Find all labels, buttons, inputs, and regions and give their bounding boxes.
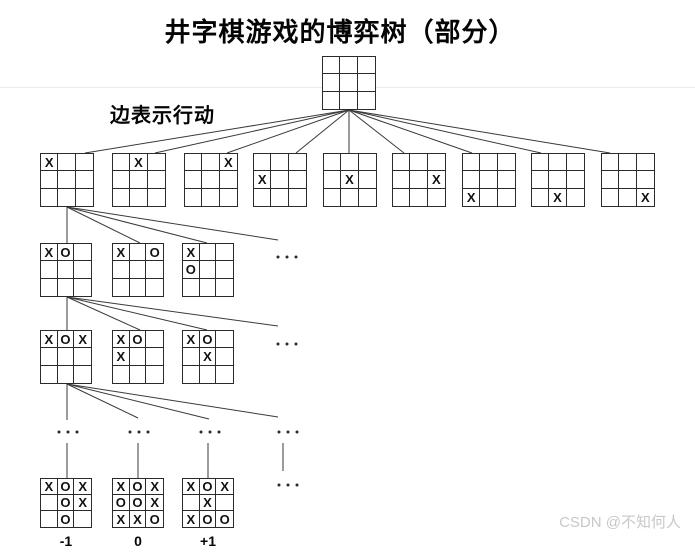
board-cell <box>58 348 75 365</box>
ellipsis-dot <box>76 431 79 434</box>
board-cell <box>393 189 410 206</box>
board-l1-3: X <box>253 153 307 207</box>
board-cell <box>271 171 288 188</box>
watermark: CSDN @不知何人 <box>559 511 681 532</box>
board-cell: X <box>113 331 130 348</box>
board-cell <box>202 171 219 188</box>
board-l1-1: X <box>112 153 166 207</box>
board-cell <box>323 57 340 74</box>
ellipsis-dot <box>278 431 281 434</box>
ellipsis-dot <box>296 431 299 434</box>
board-cell <box>619 171 636 188</box>
board-cell: O <box>130 479 147 495</box>
ellipsis-more-nodes <box>277 256 298 259</box>
board-cell <box>113 261 130 278</box>
board-cell <box>532 189 549 206</box>
board-cell <box>41 171 58 188</box>
board-l1-2: X <box>184 153 238 207</box>
board-cell <box>637 171 654 188</box>
board-cell <box>358 57 375 74</box>
ellipsis-dot <box>295 256 298 259</box>
board-cell <box>113 279 130 296</box>
board-cell: O <box>58 331 75 348</box>
ellipsis-dot <box>218 431 221 434</box>
board-cell <box>200 244 217 261</box>
board-cell <box>146 366 163 383</box>
board-cell <box>289 171 306 188</box>
ellipsis-dot <box>200 431 203 434</box>
board-cell: X <box>74 331 91 348</box>
board-cell: X <box>637 189 654 206</box>
board-cell: X <box>183 479 200 495</box>
board-cell <box>254 189 271 206</box>
board-root <box>322 56 376 110</box>
board-cell <box>216 331 233 348</box>
board-cell: X <box>113 479 130 495</box>
board-cell <box>200 366 217 383</box>
board-cell <box>324 171 341 188</box>
board-cell <box>324 189 341 206</box>
board-cell: O <box>200 479 217 495</box>
board-cell: X <box>113 511 130 527</box>
tree-edge <box>67 384 209 419</box>
board-cell <box>74 279 91 296</box>
board-cell: X <box>216 479 233 495</box>
board-cell <box>463 171 480 188</box>
board-l1-5: X <box>392 153 446 207</box>
ellipsis-dot <box>286 256 289 259</box>
tree-edge <box>67 207 207 243</box>
board-cell <box>216 348 233 365</box>
board-cell: X <box>549 189 566 206</box>
board-cell <box>130 261 147 278</box>
board-cell <box>146 261 163 278</box>
board-cell <box>202 189 219 206</box>
board-cell <box>130 348 147 365</box>
board-l3-0: XOX <box>40 330 92 384</box>
board-cell <box>74 511 91 527</box>
board-cell <box>340 74 357 91</box>
board-cell <box>271 189 288 206</box>
board-cell <box>146 331 163 348</box>
board-l2-1: XO <box>112 243 164 297</box>
board-l2-0: XO <box>40 243 92 297</box>
board-cell <box>113 366 130 383</box>
board-cell <box>216 261 233 278</box>
board-cell <box>498 171 515 188</box>
ellipsis-dot <box>287 431 290 434</box>
board-cell <box>41 495 58 511</box>
ellipsis-more-nodes <box>200 431 221 434</box>
board-cell <box>113 171 130 188</box>
board-cell <box>58 366 75 383</box>
tree-edge <box>85 110 349 153</box>
ellipsis-more-nodes <box>58 431 79 434</box>
board-cell <box>185 171 202 188</box>
tree-edge <box>349 110 472 153</box>
board-cell: X <box>146 479 163 495</box>
board-cell: O <box>216 511 233 527</box>
board-cell <box>200 261 217 278</box>
board-cell <box>130 189 147 206</box>
board-cell: X <box>183 244 200 261</box>
board-cell: X <box>74 479 91 495</box>
tree-edge <box>349 110 541 153</box>
board-cell: X <box>41 154 58 171</box>
board-cell <box>41 366 58 383</box>
board-cell <box>549 171 566 188</box>
board-cell: O <box>200 331 217 348</box>
board-cell <box>271 154 288 171</box>
board-cell: X <box>146 495 163 511</box>
board-cell <box>183 348 200 365</box>
board-cell <box>358 74 375 91</box>
board-l1-8: X <box>601 153 655 207</box>
board-cell: X <box>183 511 200 527</box>
ellipsis-dot <box>295 343 298 346</box>
board-cell <box>567 154 584 171</box>
board-cell <box>428 189 445 206</box>
board-l3-2: XOX <box>182 330 234 384</box>
board-cell <box>148 154 165 171</box>
board-terminal-0: XOXOXO <box>40 478 92 528</box>
board-cell <box>41 261 58 278</box>
board-cell: O <box>58 244 75 261</box>
ellipsis-dot <box>296 484 299 487</box>
board-cell <box>148 171 165 188</box>
board-cell: O <box>183 261 200 278</box>
board-cell <box>498 154 515 171</box>
board-cell <box>216 495 233 511</box>
board-cell: O <box>58 495 75 511</box>
board-cell: X <box>113 244 130 261</box>
board-cell <box>289 189 306 206</box>
ellipsis-dot <box>58 431 61 434</box>
board-cell <box>289 154 306 171</box>
tree-edge <box>67 207 278 240</box>
board-cell: X <box>183 331 200 348</box>
board-cell <box>41 279 58 296</box>
board-cell <box>58 261 75 278</box>
board-cell: X <box>200 495 217 511</box>
ellipsis-dot <box>287 484 290 487</box>
ellipsis-more-nodes <box>278 431 299 434</box>
board-cell <box>74 261 91 278</box>
board-cell <box>567 189 584 206</box>
board-cell <box>341 154 358 171</box>
ellipsis-dot <box>277 343 280 346</box>
tree-edge <box>349 110 610 153</box>
board-l1-7: X <box>531 153 585 207</box>
board-cell <box>185 154 202 171</box>
board-cell <box>637 154 654 171</box>
board-cell <box>76 189 93 206</box>
board-l1-4: X <box>323 153 377 207</box>
board-cell <box>254 154 271 171</box>
board-cell: O <box>130 331 147 348</box>
tree-edge <box>296 110 349 153</box>
ellipsis-dot <box>277 256 280 259</box>
board-cell <box>220 171 237 188</box>
board-cell <box>148 189 165 206</box>
board-cell: X <box>200 348 217 365</box>
board-cell <box>324 154 341 171</box>
ellipsis-more-nodes <box>277 343 298 346</box>
board-cell <box>202 154 219 171</box>
ellipsis-more-nodes <box>278 484 299 487</box>
board-cell: O <box>146 244 163 261</box>
board-cell <box>183 366 200 383</box>
board-cell: X <box>220 154 237 171</box>
game-tree-diagram: 井字棋游戏的博弈树（部分） 边表示行动 XXXXXXXXXXOXOXOXOXXO… <box>0 0 695 552</box>
board-cell <box>58 171 75 188</box>
board-cell <box>185 189 202 206</box>
board-cell <box>359 171 376 188</box>
terminal-value-label: -1 <box>60 533 72 549</box>
board-cell: O <box>130 495 147 511</box>
board-cell <box>130 244 147 261</box>
board-cell <box>200 279 217 296</box>
board-cell: O <box>58 479 75 495</box>
board-cell <box>498 189 515 206</box>
terminal-value-label: +1 <box>200 533 216 549</box>
board-cell <box>113 154 130 171</box>
board-cell: X <box>41 331 58 348</box>
board-cell: O <box>58 511 75 527</box>
board-cell <box>428 154 445 171</box>
board-cell <box>340 92 357 109</box>
board-cell <box>74 366 91 383</box>
board-cell <box>393 171 410 188</box>
board-cell: X <box>41 479 58 495</box>
board-cell: X <box>341 171 358 188</box>
board-cell <box>220 189 237 206</box>
board-cell: X <box>130 511 147 527</box>
board-cell <box>76 154 93 171</box>
board-cell <box>410 154 427 171</box>
terminal-value-label: 0 <box>134 533 142 549</box>
board-cell <box>393 154 410 171</box>
board-cell <box>532 154 549 171</box>
board-cell <box>358 92 375 109</box>
board-cell <box>113 189 130 206</box>
board-cell <box>216 366 233 383</box>
ellipsis-dot <box>147 431 150 434</box>
board-l2-2: XO <box>182 243 234 297</box>
board-cell <box>340 57 357 74</box>
board-cell <box>410 189 427 206</box>
board-cell <box>41 511 58 527</box>
ellipsis-dot <box>278 484 281 487</box>
board-cell <box>602 154 619 171</box>
board-cell <box>58 189 75 206</box>
board-cell <box>463 154 480 171</box>
tree-edge <box>67 384 278 417</box>
board-cell: X <box>74 495 91 511</box>
ellipsis-dot <box>67 431 70 434</box>
board-terminal-2: XOXXXOO <box>182 478 234 528</box>
ellipsis-dot <box>209 431 212 434</box>
board-cell <box>41 348 58 365</box>
ellipsis-dot <box>286 343 289 346</box>
board-cell <box>74 244 91 261</box>
ellipsis-dot <box>129 431 132 434</box>
board-cell <box>130 279 147 296</box>
board-cell <box>480 189 497 206</box>
board-cell: X <box>428 171 445 188</box>
board-cell <box>183 495 200 511</box>
board-cell <box>480 154 497 171</box>
board-cell <box>341 189 358 206</box>
board-cell: O <box>113 495 130 511</box>
board-cell: X <box>130 154 147 171</box>
board-cell <box>146 348 163 365</box>
board-cell <box>532 171 549 188</box>
board-cell <box>216 244 233 261</box>
tree-edge <box>155 110 349 153</box>
board-cell: O <box>200 511 217 527</box>
board-cell <box>619 154 636 171</box>
board-cell <box>359 154 376 171</box>
board-cell <box>602 189 619 206</box>
board-cell <box>130 171 147 188</box>
board-cell <box>41 189 58 206</box>
board-l1-0: X <box>40 153 94 207</box>
board-cell: O <box>146 511 163 527</box>
board-cell <box>58 154 75 171</box>
board-cell <box>74 348 91 365</box>
board-cell <box>146 279 163 296</box>
board-cell: X <box>254 171 271 188</box>
board-cell <box>216 279 233 296</box>
ellipsis-dot <box>138 431 141 434</box>
board-cell: X <box>113 348 130 365</box>
board-cell <box>130 366 147 383</box>
tree-edge <box>227 110 349 153</box>
board-cell: X <box>41 244 58 261</box>
board-terminal-1: XOXOOXXXO <box>112 478 164 528</box>
board-l3-1: XOX <box>112 330 164 384</box>
board-cell <box>549 154 566 171</box>
board-cell <box>567 171 584 188</box>
board-cell <box>183 279 200 296</box>
board-cell <box>619 189 636 206</box>
board-cell <box>323 74 340 91</box>
board-cell <box>480 171 497 188</box>
board-cell <box>602 171 619 188</box>
board-l1-6: X <box>462 153 516 207</box>
board-cell <box>323 92 340 109</box>
board-cell <box>58 279 75 296</box>
board-cell <box>410 171 427 188</box>
ellipsis-more-nodes <box>129 431 150 434</box>
board-cell <box>76 171 93 188</box>
board-cell <box>359 189 376 206</box>
board-cell: X <box>463 189 480 206</box>
